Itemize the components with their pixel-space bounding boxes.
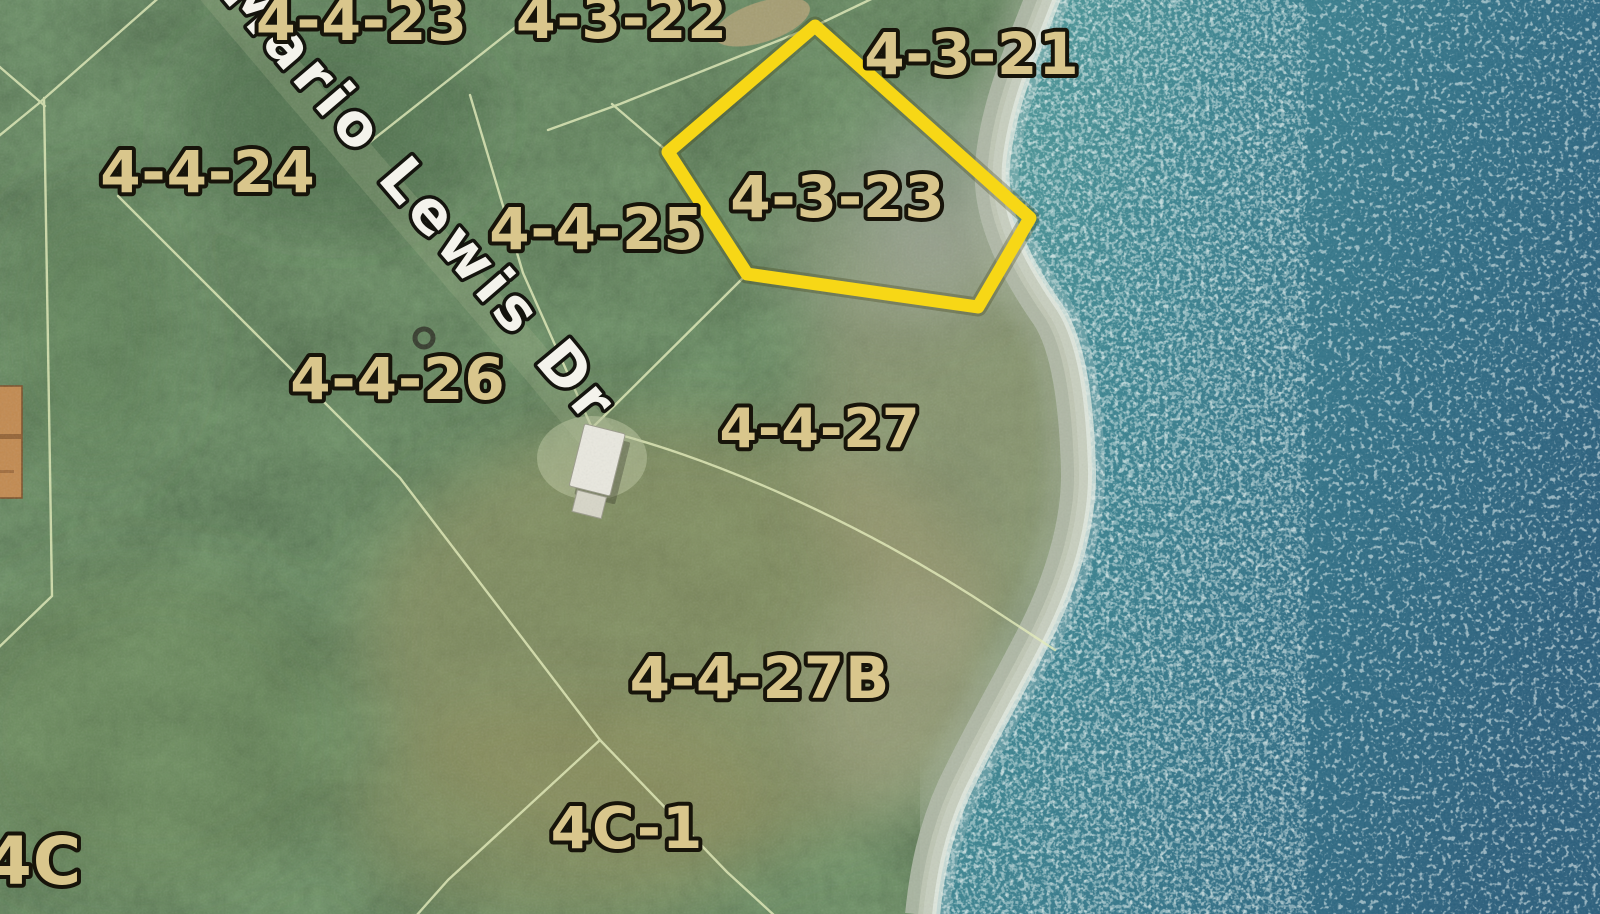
parcel-label-4C: 4C — [0, 823, 82, 900]
parcel-label-4C-1: 4C-1 — [551, 794, 704, 862]
parcel-label-4-4-25: 4-4-25 — [489, 195, 705, 263]
map-canvas[interactable]: Mario Lewis Dr 4-4-234-3-224-3-214-4-244… — [0, 0, 1600, 914]
parcel-label-4-3-23: 4-3-23 — [730, 163, 946, 231]
parcel-label-4-4-27: 4-4-27 — [719, 397, 920, 460]
parcel-label-4-4-26: 4-4-26 — [290, 345, 506, 413]
parcel-label-4-4-24: 4-4-24 — [100, 138, 316, 206]
satellite-map: Mario Lewis Dr 4-4-234-3-224-3-214-4-244… — [0, 0, 1600, 914]
parcel-label-4-3-21: 4-3-21 — [864, 20, 1080, 88]
parcel-label-4-4-27B: 4-4-27B — [630, 644, 891, 712]
parcel-label-4-4-23: 4-4-23 — [256, 0, 468, 54]
parcel-label-4-3-22: 4-3-22 — [516, 0, 728, 52]
